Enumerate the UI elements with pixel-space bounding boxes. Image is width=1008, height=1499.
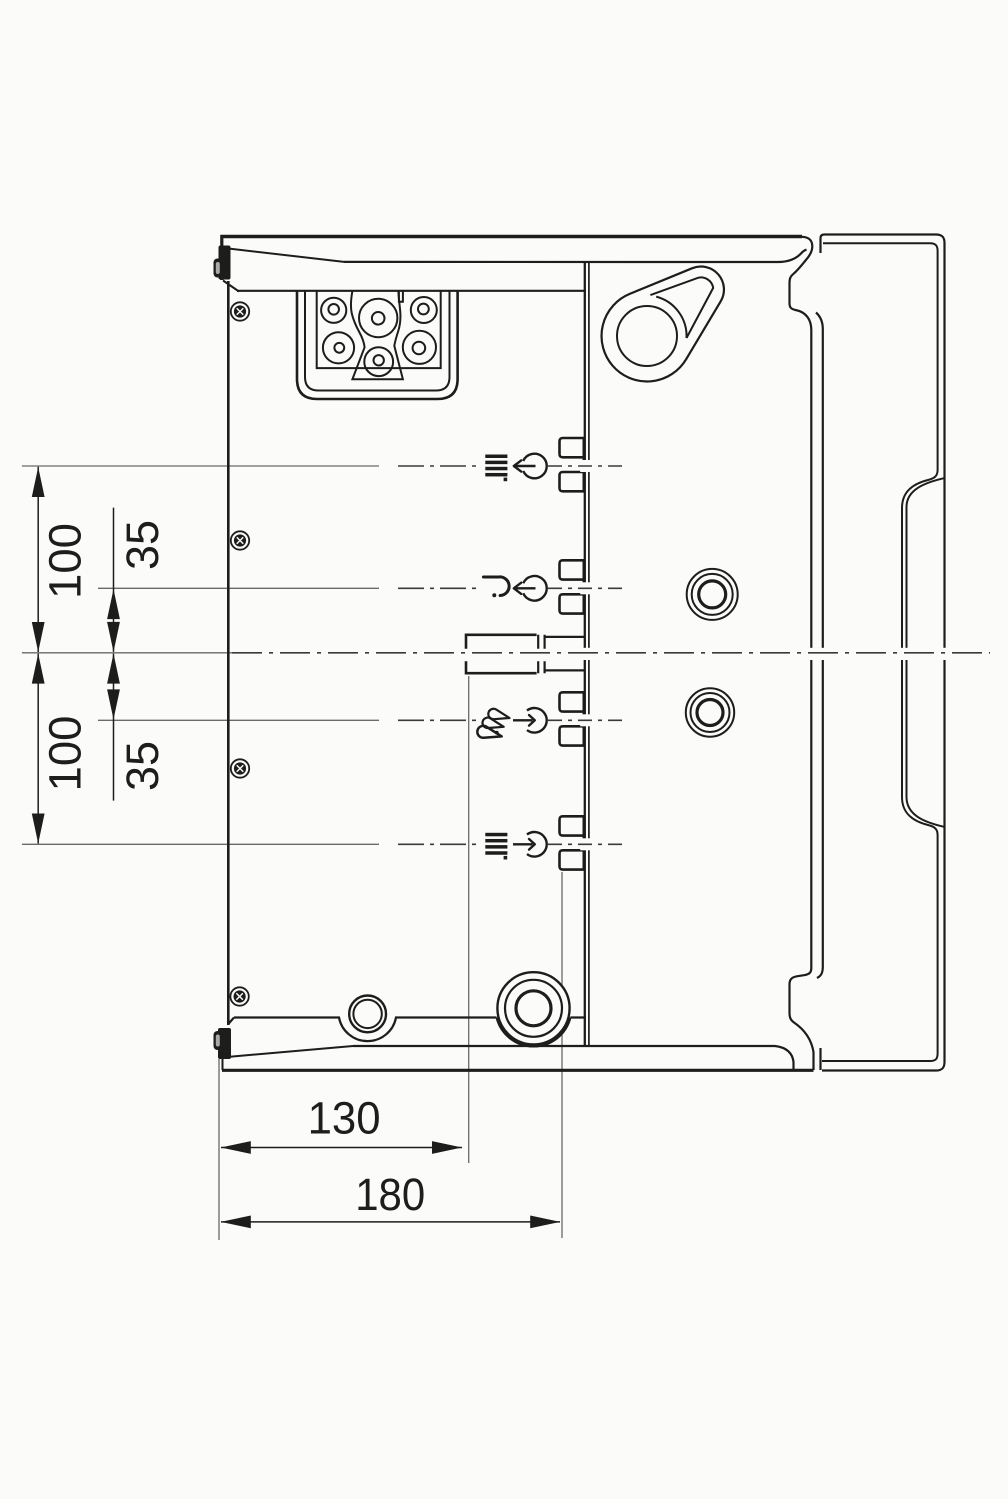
svg-text:130: 130 [308,1093,381,1144]
svg-text:180: 180 [355,1169,425,1220]
svg-text:100: 100 [40,716,91,792]
svg-text:35: 35 [117,520,168,570]
svg-text:100: 100 [40,523,91,599]
svg-text:35: 35 [117,741,168,791]
